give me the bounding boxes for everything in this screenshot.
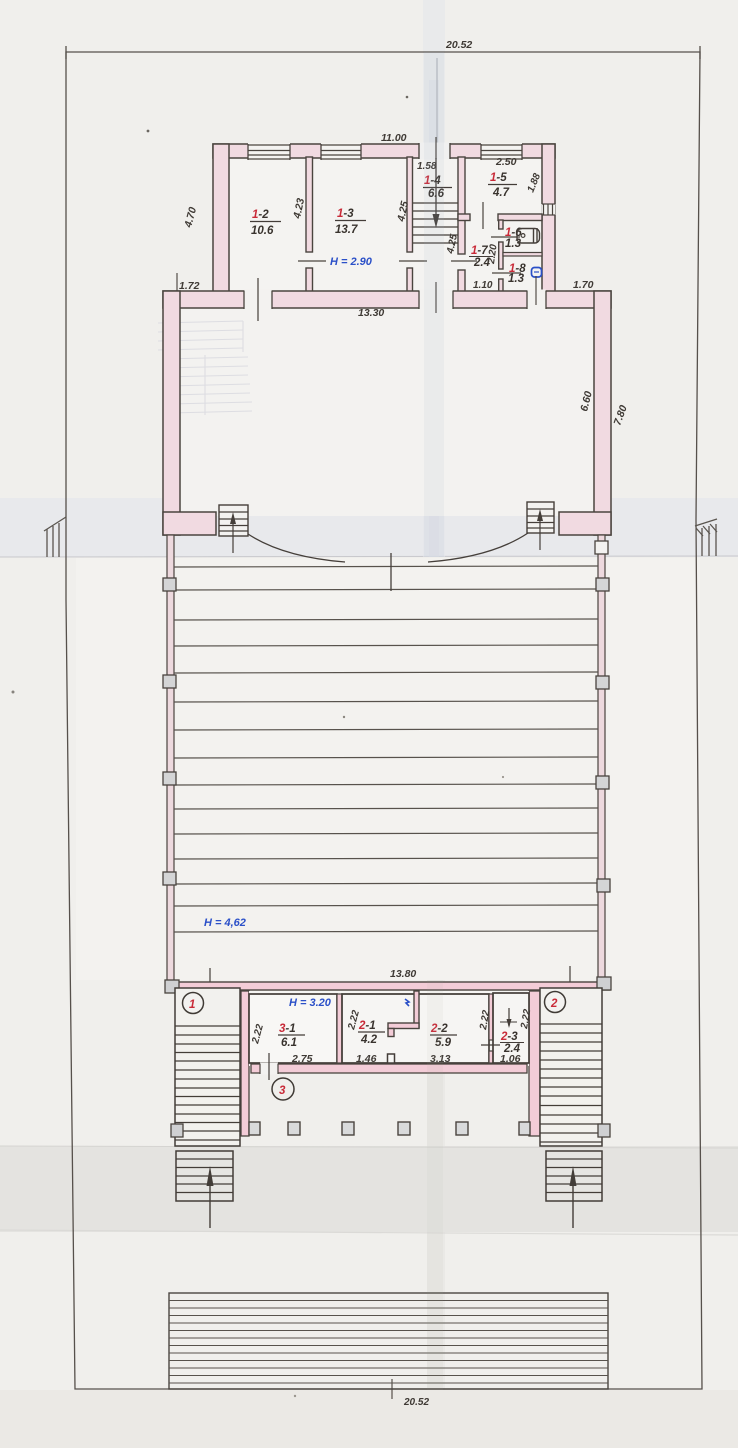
svg-text:1.10: 1.10	[473, 280, 493, 291]
svg-text:11.00: 11.00	[381, 132, 407, 144]
svg-text:10.6: 10.6	[251, 225, 274, 237]
svg-text:H = 2.90: H = 2.90	[330, 256, 373, 268]
svg-text:H = 3.20: H = 3.20	[289, 997, 332, 1009]
svg-text:2.75: 2.75	[291, 1053, 313, 1065]
svg-text:20.52: 20.52	[445, 39, 472, 51]
svg-text:1.72: 1.72	[179, 280, 200, 292]
svg-text:2-3: 2-3	[500, 1031, 518, 1043]
svg-text:1.3: 1.3	[505, 238, 522, 250]
svg-text:20.52: 20.52	[403, 1397, 429, 1408]
svg-text:1-3: 1-3	[337, 208, 354, 220]
svg-text:1.06: 1.06	[500, 1053, 521, 1065]
svg-text:3: 3	[279, 1085, 286, 1097]
svg-text:2: 2	[550, 998, 558, 1010]
svg-text:1: 1	[189, 999, 195, 1011]
svg-text:1-7: 1-7	[471, 245, 488, 257]
svg-text:2.50: 2.50	[495, 156, 517, 168]
svg-text:4.7: 4.7	[492, 187, 510, 199]
svg-text:13.80: 13.80	[390, 968, 416, 980]
svg-text:2-1: 2-1	[358, 1020, 376, 1032]
svg-text:13.30: 13.30	[358, 307, 384, 319]
svg-text:13.7: 13.7	[335, 224, 358, 236]
svg-text:6.1: 6.1	[281, 1037, 297, 1049]
svg-text:1-5: 1-5	[490, 172, 507, 184]
svg-text:3-1: 3-1	[279, 1023, 296, 1035]
svg-text:1-2: 1-2	[252, 209, 269, 221]
svg-text:1.46: 1.46	[356, 1053, 377, 1065]
svg-text:1.70: 1.70	[573, 279, 594, 291]
svg-text:H = 4,62: H = 4,62	[204, 917, 246, 929]
svg-text:1.3: 1.3	[508, 273, 525, 285]
svg-text:4.2: 4.2	[360, 1034, 378, 1046]
